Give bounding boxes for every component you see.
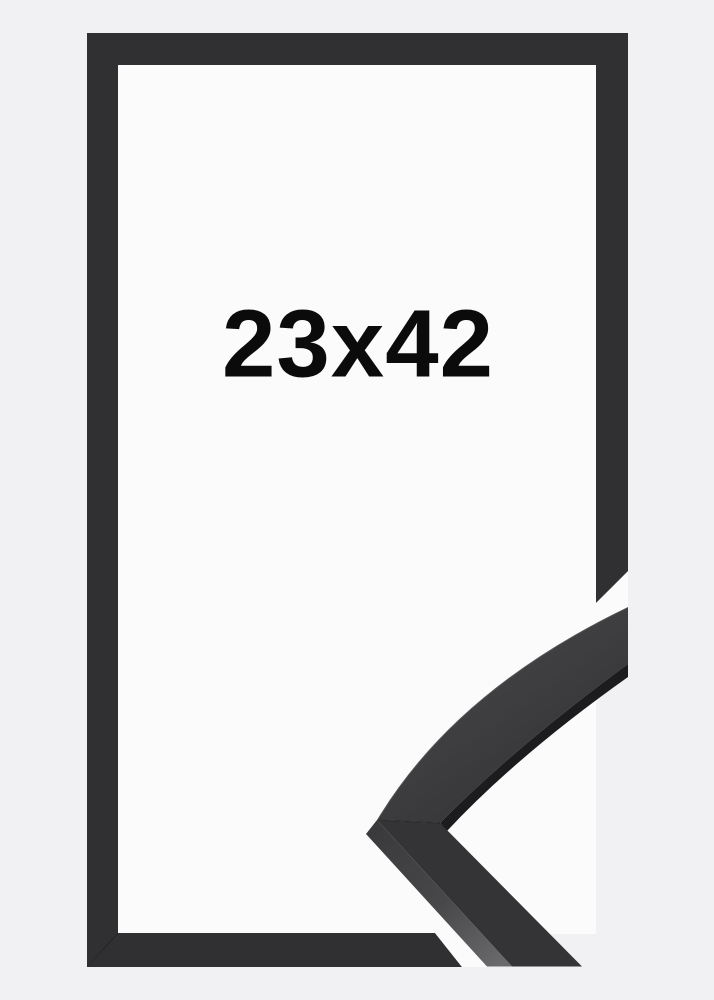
frame-product-image: 23x42 — [0, 0, 714, 1000]
frame-right-bar-cut — [596, 33, 628, 603]
frame-left-bar — [87, 33, 118, 967]
frame-bottom-bar-cut — [87, 933, 462, 967]
frame-top-bar — [87, 33, 628, 65]
frame-mockup-graphic — [0, 0, 714, 1000]
frame-interior — [118, 65, 596, 934]
size-label: 23x42 — [222, 290, 494, 400]
